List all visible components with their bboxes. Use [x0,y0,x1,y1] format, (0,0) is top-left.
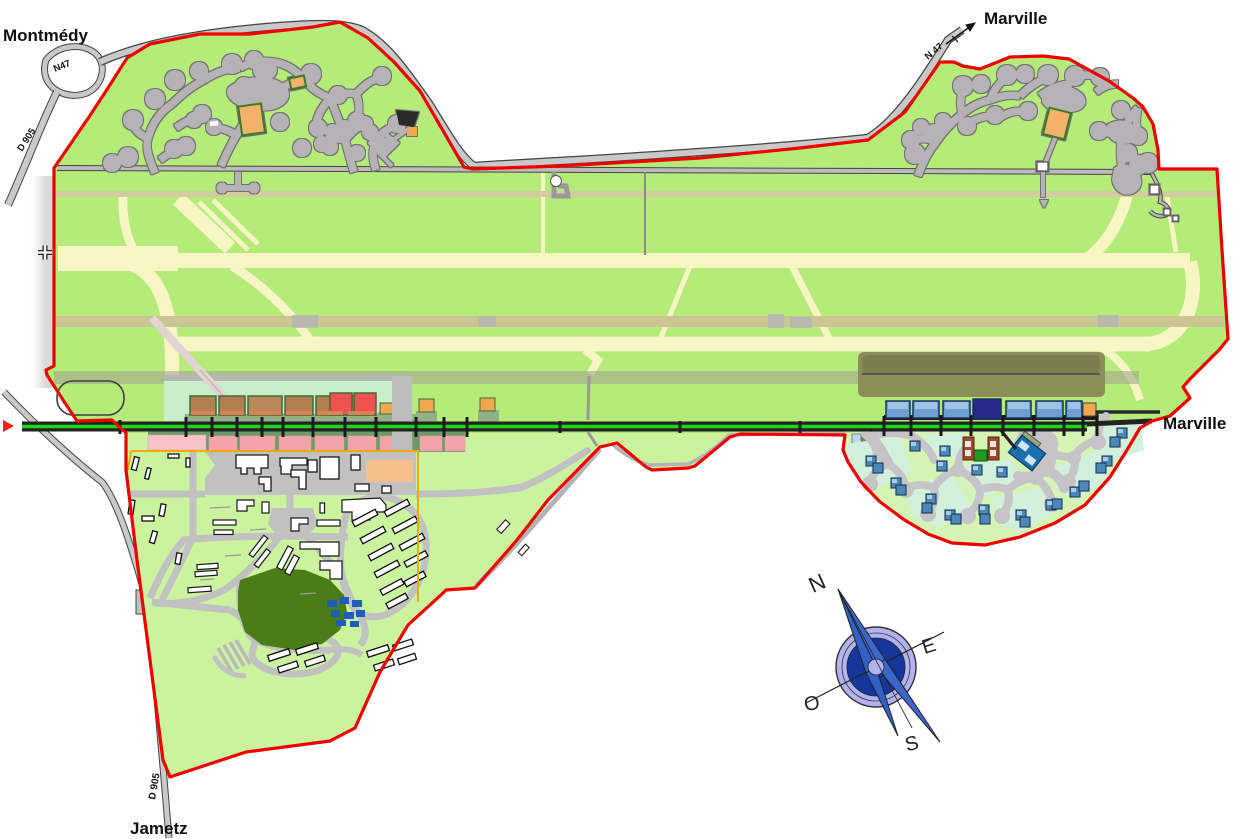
svg-text:Marville: Marville [1163,414,1226,433]
svg-text:S: S [903,732,921,757]
svg-text:O: O [803,692,821,716]
svg-text:Montmédy: Montmédy [3,26,89,45]
svg-text:Jametz: Jametz [130,819,188,838]
svg-text:N: N [805,568,830,597]
svg-text:N47: N47 [52,58,72,75]
svg-text:D 905: D 905 [147,772,163,801]
svg-text:E: E [919,634,938,659]
svg-text:Marville: Marville [984,9,1047,28]
